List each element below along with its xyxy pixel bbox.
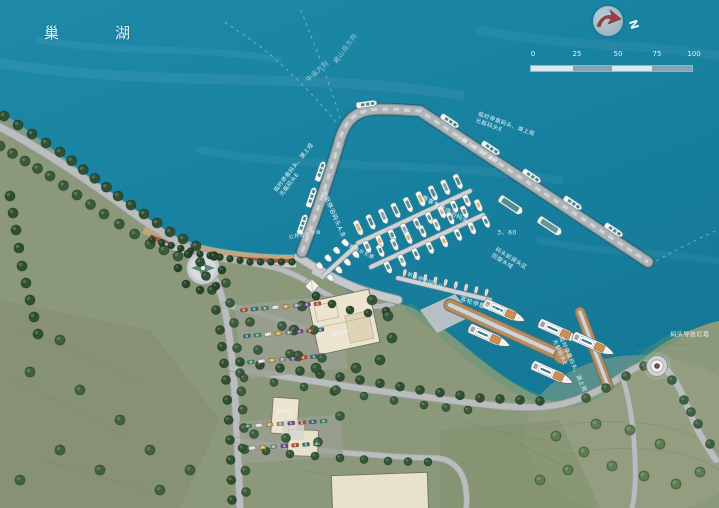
- scale-tick-50: 50: [614, 50, 623, 58]
- compass-arrow-icon: [593, 6, 623, 36]
- site-plan-map: 巢湖 姥山岛方向 中庙方向 临时停靠码头、湖上观 光艇码头E 临时停靠码头、湖上…: [0, 0, 719, 508]
- lighthouse: [643, 352, 671, 380]
- scale-bar: 0 25 50 75 100: [526, 50, 702, 76]
- scale-tick-25: 25: [573, 50, 582, 58]
- scale-tick-0: 0: [531, 50, 535, 58]
- scale-tick-75: 75: [653, 50, 662, 58]
- compass-north-arrow: N: [593, 6, 651, 42]
- scale-tick-100: 100: [687, 50, 700, 58]
- site-plan-graphics: [0, 0, 719, 508]
- compass-north-letter: N: [626, 18, 641, 31]
- scale-bar-segments: [531, 66, 692, 71]
